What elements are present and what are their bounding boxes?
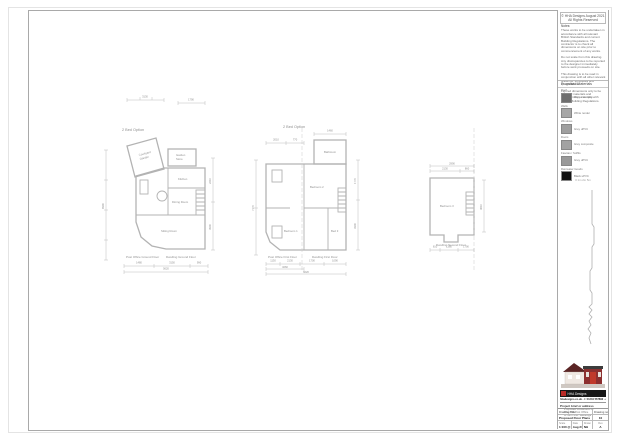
dim-line — [430, 248, 474, 252]
dim-value: 2130 — [287, 259, 293, 263]
dim-value: 1130 — [270, 259, 276, 263]
copyright-box: © HHA Designs August 2021 All Rights Res… — [560, 12, 606, 24]
note-paragraph: Do not scale from this drawing. Any disc… — [561, 56, 606, 70]
dim-value: 610 — [433, 245, 438, 249]
dim-value: 3150 — [169, 261, 175, 265]
material-label: Grey composite — [574, 143, 594, 146]
room-label: Bed 3 — [331, 229, 339, 233]
material-swatch — [561, 93, 572, 103]
brand-logo-icon — [561, 391, 566, 396]
dim-line — [356, 160, 360, 250]
dim-value: 1090 — [332, 259, 338, 263]
brand-name: HHA Designs — [568, 392, 587, 396]
dim-line — [211, 158, 215, 250]
dim-value: 1790 — [188, 98, 194, 102]
dim-value: 8390 — [101, 203, 105, 209]
dim-line — [266, 141, 304, 145]
dim-value: 3130 — [142, 95, 148, 99]
materials-title: Proposed Materials — [558, 81, 608, 88]
material-item: Doors Grey composite — [558, 135, 608, 151]
title-block-table: Drawing Title Drawing no. Proposed Floor… — [558, 408, 608, 429]
dim-line — [314, 132, 346, 136]
material-swatch — [561, 140, 572, 150]
material-swatch — [561, 124, 572, 134]
dim-value: 1460 — [327, 129, 333, 133]
plan-caption: Post Office Ground Floor — [126, 255, 159, 259]
material-label: White render — [574, 112, 590, 115]
drawing-no-value: 10 — [593, 415, 608, 420]
dim-line — [266, 262, 346, 266]
plan2-stair-treads — [338, 192, 346, 208]
dim-value: 3260 — [282, 265, 288, 269]
material-item: Roof Grey slate tiles — [558, 88, 608, 104]
break-line — [558, 186, 608, 351]
brand-contact: hhadesigns.co.uk · t: 01234 567890 · e: … — [560, 398, 606, 403]
materials-legend: Proposed Materials Roof Grey slate tiles… — [558, 80, 608, 182]
plan1-fixture — [140, 180, 148, 194]
copyright-line: All Rights Reserved — [561, 18, 605, 22]
dim-value: 6620 — [303, 270, 309, 274]
house-render — [561, 357, 605, 389]
room-label: Sitting Room — [161, 229, 178, 233]
room-label: Bedroom 1 — [284, 229, 298, 233]
room-label: Bedroom 2 — [310, 185, 324, 189]
room-label: Store — [176, 157, 183, 161]
plan2-fixture — [272, 170, 282, 182]
dim-value: 2990 — [449, 162, 455, 166]
dim-value: 3300 — [353, 223, 357, 229]
floor-plans-canvas: 2 Bed Option 2 Bed Option Courtyard Gard… — [28, 10, 557, 429]
dim-line — [178, 101, 205, 105]
plan3-stair-treads — [466, 196, 474, 212]
drawn-cell: Drawn NH — [583, 421, 593, 429]
dim-value: 860 — [465, 167, 470, 171]
plan2-title: 2 Bed Option — [283, 125, 305, 129]
dim-value: 2130 — [442, 167, 448, 171]
dim-value: 3900 — [208, 224, 212, 230]
material-label: Grey uPVC — [574, 128, 588, 131]
material-item: Windows Grey uPVC — [558, 119, 608, 135]
material-item: Walls White render — [558, 104, 608, 120]
dim-value: 1700 — [309, 259, 315, 263]
material-label: Grey slate tiles — [574, 96, 593, 99]
material-swatch — [561, 108, 572, 118]
dim-value: 1770 — [353, 178, 357, 184]
date-cell: Date Aug 21 — [572, 421, 583, 429]
drawing-title-label: Drawing Title — [558, 409, 593, 414]
dim-value: 770 — [293, 138, 298, 142]
plan-caption: Dwelling First Floor — [312, 255, 338, 259]
note-paragraph: These works to be undertaken in accordan… — [561, 29, 606, 53]
brand-banner: HHA Designs — [560, 390, 606, 397]
material-swatch — [561, 156, 572, 166]
room-label: Bedroom 3 — [440, 204, 454, 208]
rev-cell: Rev A — [593, 421, 608, 429]
scale-cell: Scale 1:100 @ A3 — [558, 421, 572, 429]
dim-value: 7170 — [251, 205, 255, 211]
dim-value: 2210 — [208, 178, 212, 184]
plan-caption: Post Office First Floor — [268, 255, 297, 259]
dim-value: 1480 — [136, 261, 142, 265]
plan1-table — [157, 191, 167, 201]
dim-value: 2010 — [273, 138, 279, 142]
drawing-title-value: Proposed Floor Plans — [558, 415, 593, 420]
plan-caption: Dwelling Ground Floor — [166, 255, 196, 259]
plan2-main-walls — [266, 164, 346, 250]
dim-value: 5620 — [163, 267, 169, 271]
plan1-stair-treads — [196, 194, 205, 210]
material-item: Fascias / Soffits Grey uPVC — [558, 151, 608, 167]
plan2-fixture — [272, 226, 282, 238]
material-label: Grey uPVC — [574, 159, 588, 162]
plan3-walls — [430, 178, 474, 242]
dim-value: 1790 — [463, 245, 469, 249]
drawing-no-label: Drawing no. — [593, 409, 608, 414]
dim-value: 3610 — [479, 204, 483, 210]
title-panel: © HHA Designs August 2021 All Rights Res… — [557, 10, 608, 429]
drawing-sheet: 2 Bed Option 2 Bed Option Courtyard Gard… — [0, 0, 619, 437]
room-label: Bathroom — [324, 150, 337, 154]
scale-bar-label: 0 1m 2m 5m — [558, 178, 608, 182]
dim-value: 1380 — [446, 245, 452, 249]
room-label: Dining Room — [172, 200, 189, 204]
plan1-title: 2 Bed Option — [122, 128, 144, 132]
dim-value: 990 — [197, 261, 202, 265]
room-label: Kitchen — [178, 177, 188, 181]
dim-line — [124, 270, 208, 274]
